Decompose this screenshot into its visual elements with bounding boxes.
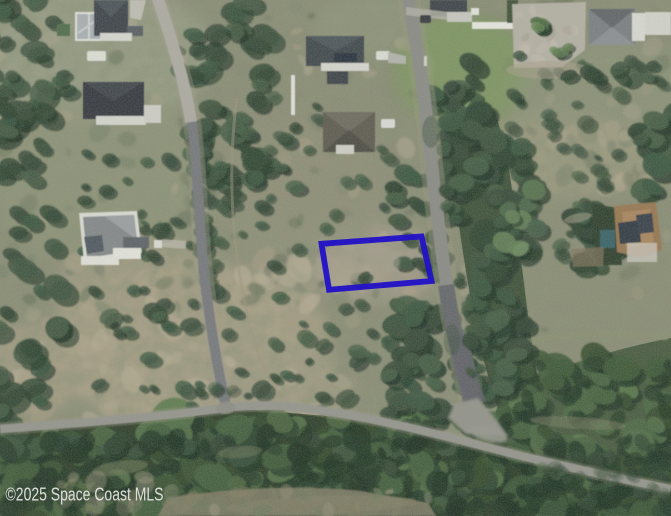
svg-text:©2025 Space Coast MLS: ©2025 Space Coast MLS [6,485,164,505]
